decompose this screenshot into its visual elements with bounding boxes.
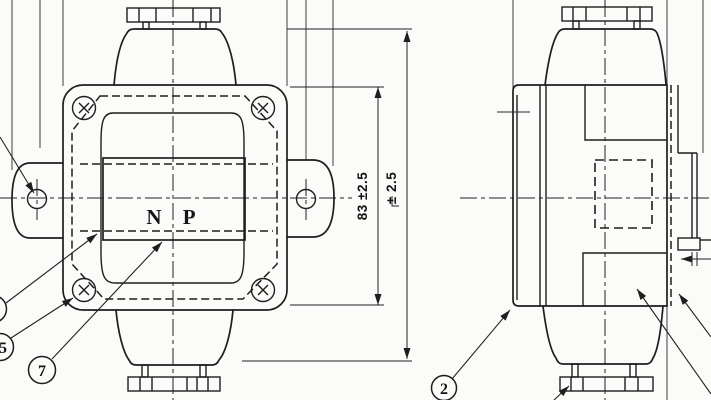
callout-partial-balloon <box>0 296 7 323</box>
callout-5-number: 5 <box>0 340 7 357</box>
leader-lower-block <box>637 289 711 394</box>
dim-body-height-label: 83 ±2.5 <box>355 172 370 220</box>
drawing-canvas: N P <box>0 0 711 400</box>
side-terminal-plate <box>678 85 711 250</box>
front-bottom-cap <box>128 365 220 391</box>
side-top-pin-left <box>573 21 579 29</box>
side-bottom-cap <box>560 364 653 391</box>
callout-2-number: 2 <box>440 381 448 398</box>
side-view <box>497 7 711 391</box>
front-top-pin-right <box>200 22 206 29</box>
side-bottom-pin-left <box>572 364 578 377</box>
dimensions: 83 ±2.5 ± 2.5 <box>242 29 711 361</box>
front-bottom-neck <box>116 310 233 365</box>
side-plate-foot <box>678 238 700 250</box>
front-bottom-pin-right <box>200 365 206 377</box>
side-body <box>513 85 667 306</box>
dimension-plate-thickness <box>681 252 711 266</box>
side-top-pin-right <box>634 21 640 29</box>
front-top-neck <box>114 29 236 85</box>
nameplate-label: N P <box>146 205 203 229</box>
callout-2: 2 <box>432 310 511 400</box>
callout-5: 5 <box>0 298 73 361</box>
dimension-body-height: 83 ±2.5 <box>290 87 384 305</box>
leader-partial <box>6 234 97 303</box>
dimension-overall-height: ± 2.5 <box>242 29 412 361</box>
drawing-sheet: N P <box>0 0 711 400</box>
screw-bottom-left <box>73 279 96 302</box>
side-bottom-neck <box>543 306 663 364</box>
leader-bottom-cap <box>554 386 569 400</box>
front-top-pin-left <box>143 22 149 29</box>
hidden-cavity <box>595 160 652 228</box>
callout-7-number: 7 <box>38 363 46 380</box>
side-upper-step <box>585 85 667 140</box>
side-lower-step <box>583 253 667 306</box>
side-top-cap <box>562 7 652 29</box>
side-bottom-pin-right <box>630 364 636 377</box>
leader-ear-hole <box>0 137 34 193</box>
callout-7: 7 <box>29 242 163 384</box>
leader-gasket-edge <box>679 294 711 337</box>
screw-bottom-right <box>252 279 275 302</box>
front-bottom-pin-left <box>142 365 148 377</box>
